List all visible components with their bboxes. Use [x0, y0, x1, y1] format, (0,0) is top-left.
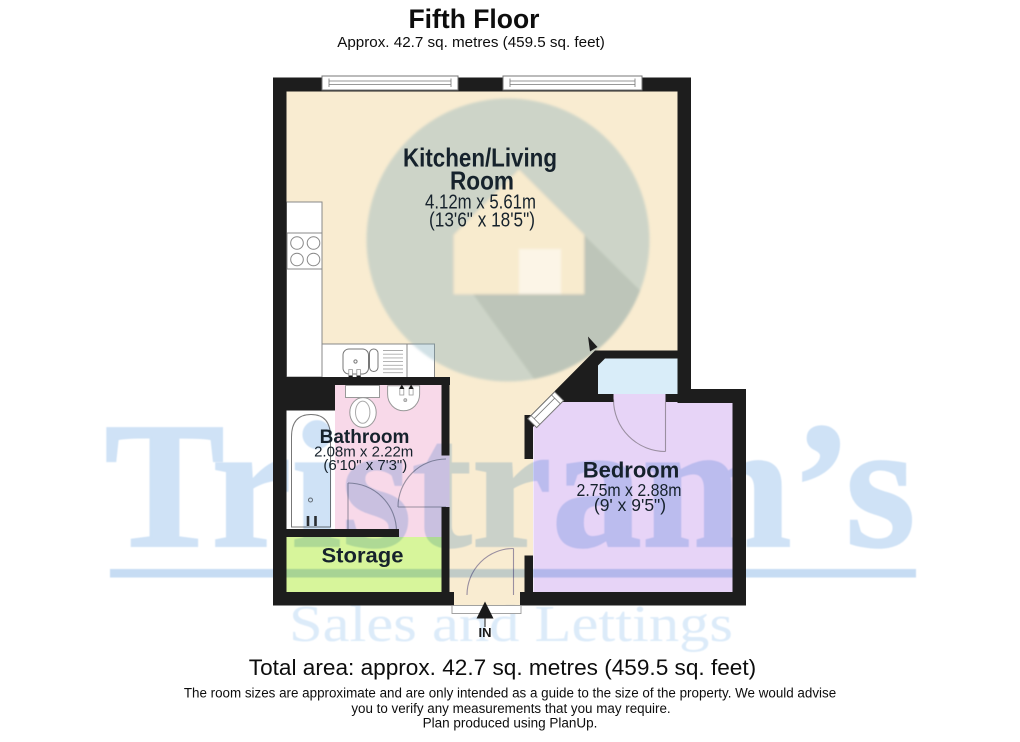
svg-text:Total area: approx. 42.7 sq. m: Total area: approx. 42.7 sq. metres (459…	[249, 655, 756, 680]
svg-text:(9' x 9'5"): (9' x 9'5")	[594, 495, 666, 515]
svg-text:Bedroom: Bedroom	[583, 458, 680, 483]
svg-text:Plan produced using PlanUp.: Plan produced using PlanUp.	[423, 716, 598, 731]
svg-text:IN: IN	[479, 625, 492, 640]
svg-text:The room sizes are approximate: The room sizes are approximate and are o…	[184, 686, 836, 701]
svg-text:Approx. 42.7 sq. metres (459.5: Approx. 42.7 sq. metres (459.5 sq. feet)	[337, 34, 605, 51]
svg-text:Fifth Floor: Fifth Floor	[409, 4, 540, 34]
svg-text:Storage: Storage	[322, 544, 404, 568]
svg-text:you to verify any measurements: you to verify any measurements that you …	[351, 701, 670, 716]
svg-text:(13'6" x 18'5"): (13'6" x 18'5")	[429, 210, 535, 232]
svg-text:(6'10" x 7'3"): (6'10" x 7'3")	[323, 457, 407, 474]
svg-text:Tristram’s: Tristram’s	[105, 386, 916, 585]
